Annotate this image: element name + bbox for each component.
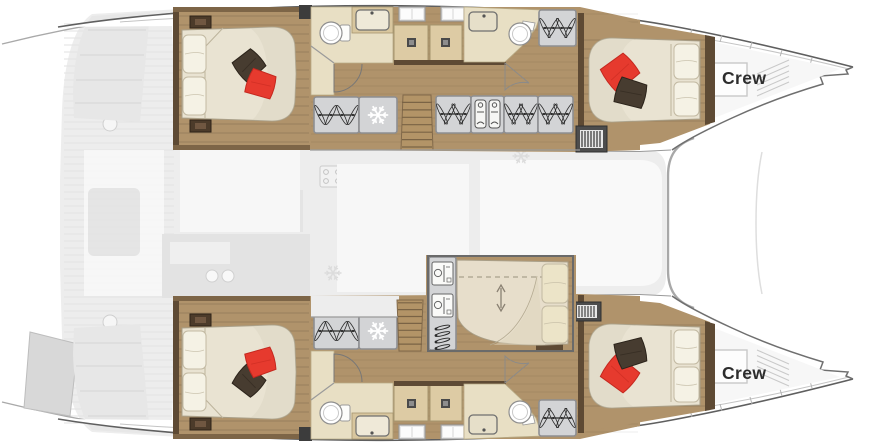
svg-text:Crew: Crew [722,363,766,383]
svg-text:Crew: Crew [722,68,766,88]
